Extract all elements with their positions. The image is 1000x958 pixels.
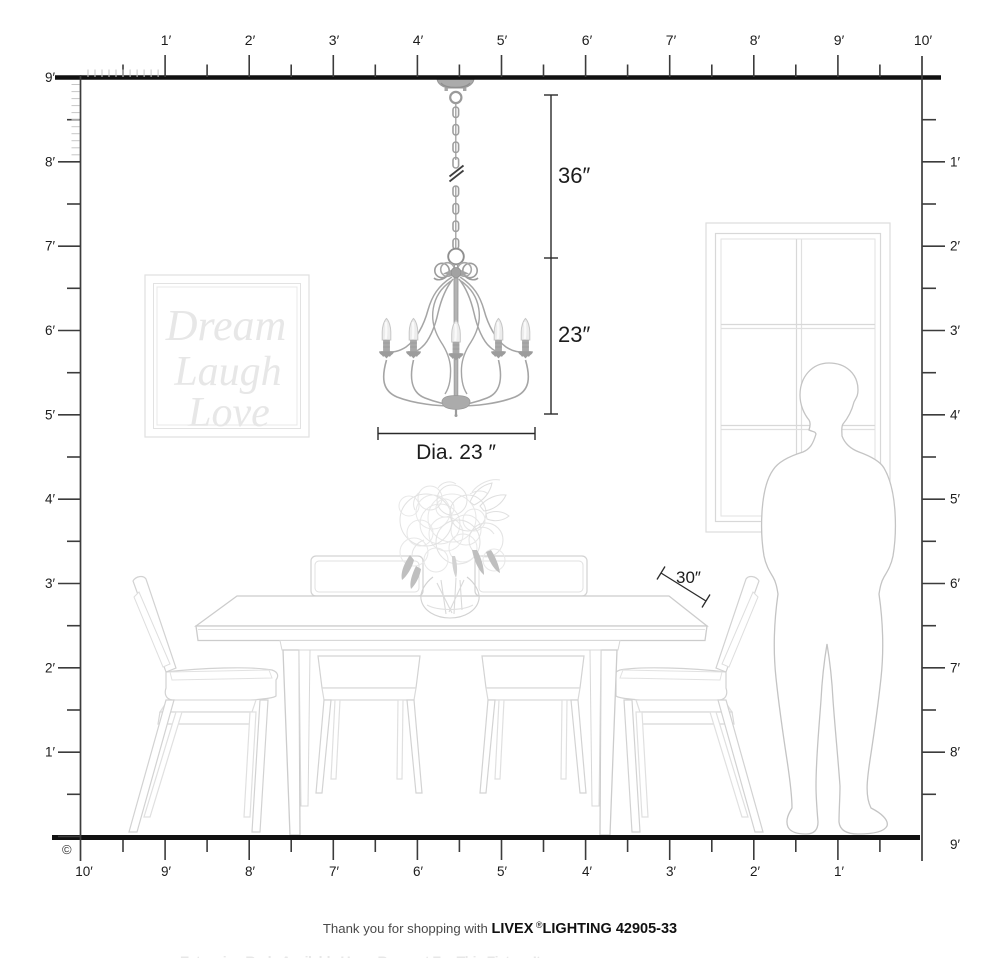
svg-text:Thank you for shopping with LI: Thank you for shopping with LIVEX ®LIGHT… — [323, 920, 677, 937]
svg-text:9′: 9′ — [834, 32, 845, 48]
svg-text:8′: 8′ — [245, 864, 256, 879]
svg-text:6′: 6′ — [582, 32, 593, 48]
svg-text:3′: 3′ — [950, 323, 961, 338]
svg-text:1′: 1′ — [950, 154, 961, 169]
svg-text:7′: 7′ — [45, 239, 56, 254]
svg-text:6′: 6′ — [950, 576, 961, 591]
svg-text:2′: 2′ — [950, 239, 961, 254]
svg-text:3′: 3′ — [45, 576, 56, 591]
svg-text:7′: 7′ — [666, 32, 677, 48]
svg-text:2′: 2′ — [750, 864, 761, 879]
svg-text:6′: 6′ — [413, 864, 424, 879]
svg-text:9′: 9′ — [161, 864, 172, 879]
svg-text:2′: 2′ — [245, 32, 256, 48]
svg-text:3′: 3′ — [329, 32, 340, 48]
svg-text:Laugh: Laugh — [173, 349, 281, 395]
svg-text:4′: 4′ — [413, 32, 424, 48]
svg-text:5′: 5′ — [497, 864, 508, 879]
svg-text:30″: 30″ — [676, 568, 701, 587]
svg-text:4′: 4′ — [950, 407, 961, 422]
svg-text:8′: 8′ — [750, 32, 761, 48]
svg-text:1′: 1′ — [45, 745, 56, 760]
svg-text:3′: 3′ — [666, 864, 677, 879]
svg-text:6′: 6′ — [45, 323, 56, 338]
svg-text:©: © — [62, 842, 72, 857]
svg-text:9′: 9′ — [45, 70, 56, 85]
svg-text:Dream: Dream — [165, 301, 287, 350]
svg-text:1′: 1′ — [834, 864, 845, 879]
svg-text:8′: 8′ — [950, 745, 961, 760]
svg-text:2′: 2′ — [45, 660, 56, 675]
svg-text:Extension Rods Available Upon: Extension Rods Available Upon Request Fo… — [180, 953, 560, 958]
svg-text:36″: 36″ — [558, 163, 590, 188]
svg-text:8′: 8′ — [45, 154, 56, 169]
svg-text:7′: 7′ — [329, 864, 340, 879]
svg-text:23″: 23″ — [558, 322, 590, 347]
svg-text:5′: 5′ — [950, 492, 961, 507]
svg-text:4′: 4′ — [582, 864, 593, 879]
svg-text:5′: 5′ — [497, 32, 508, 48]
svg-text:10′: 10′ — [914, 32, 933, 48]
svg-text:4′: 4′ — [45, 492, 56, 507]
svg-text:Dia. 23 ″: Dia. 23 ″ — [416, 441, 496, 464]
svg-text:7′: 7′ — [950, 660, 961, 675]
svg-text:Love: Love — [187, 390, 270, 436]
svg-text:1′: 1′ — [161, 32, 172, 48]
svg-text:10′: 10′ — [75, 864, 93, 879]
svg-text:9′: 9′ — [950, 837, 961, 852]
svg-text:5′: 5′ — [45, 407, 56, 422]
